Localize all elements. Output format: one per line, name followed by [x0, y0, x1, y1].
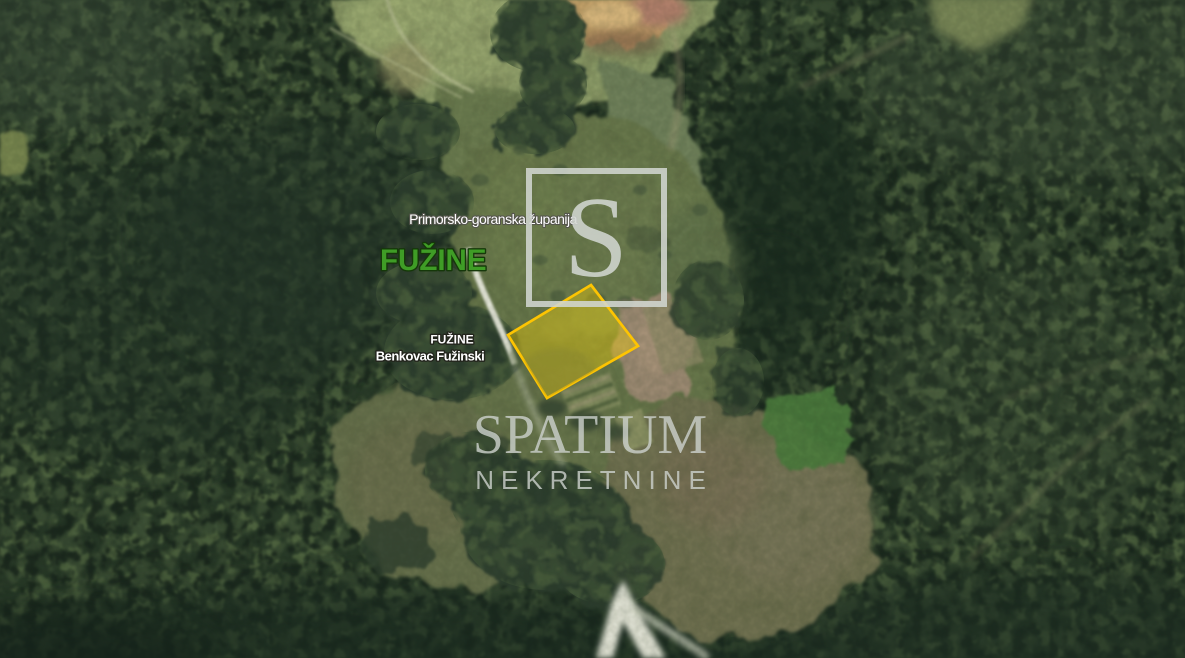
svg-text:FUŽINE: FUŽINE	[380, 243, 487, 277]
svg-text:NEKRETNINE: NEKRETNINE	[475, 465, 713, 495]
svg-text:S: S	[564, 174, 628, 301]
svg-text:Benkovac Fužinski: Benkovac Fužinski	[376, 349, 485, 364]
svg-text:SPATIUM: SPATIUM	[473, 404, 707, 466]
svg-text:Primorsko-goranska županija: Primorsko-goranska županija	[409, 211, 578, 227]
svg-text:FUŽINE: FUŽINE	[430, 332, 473, 347]
